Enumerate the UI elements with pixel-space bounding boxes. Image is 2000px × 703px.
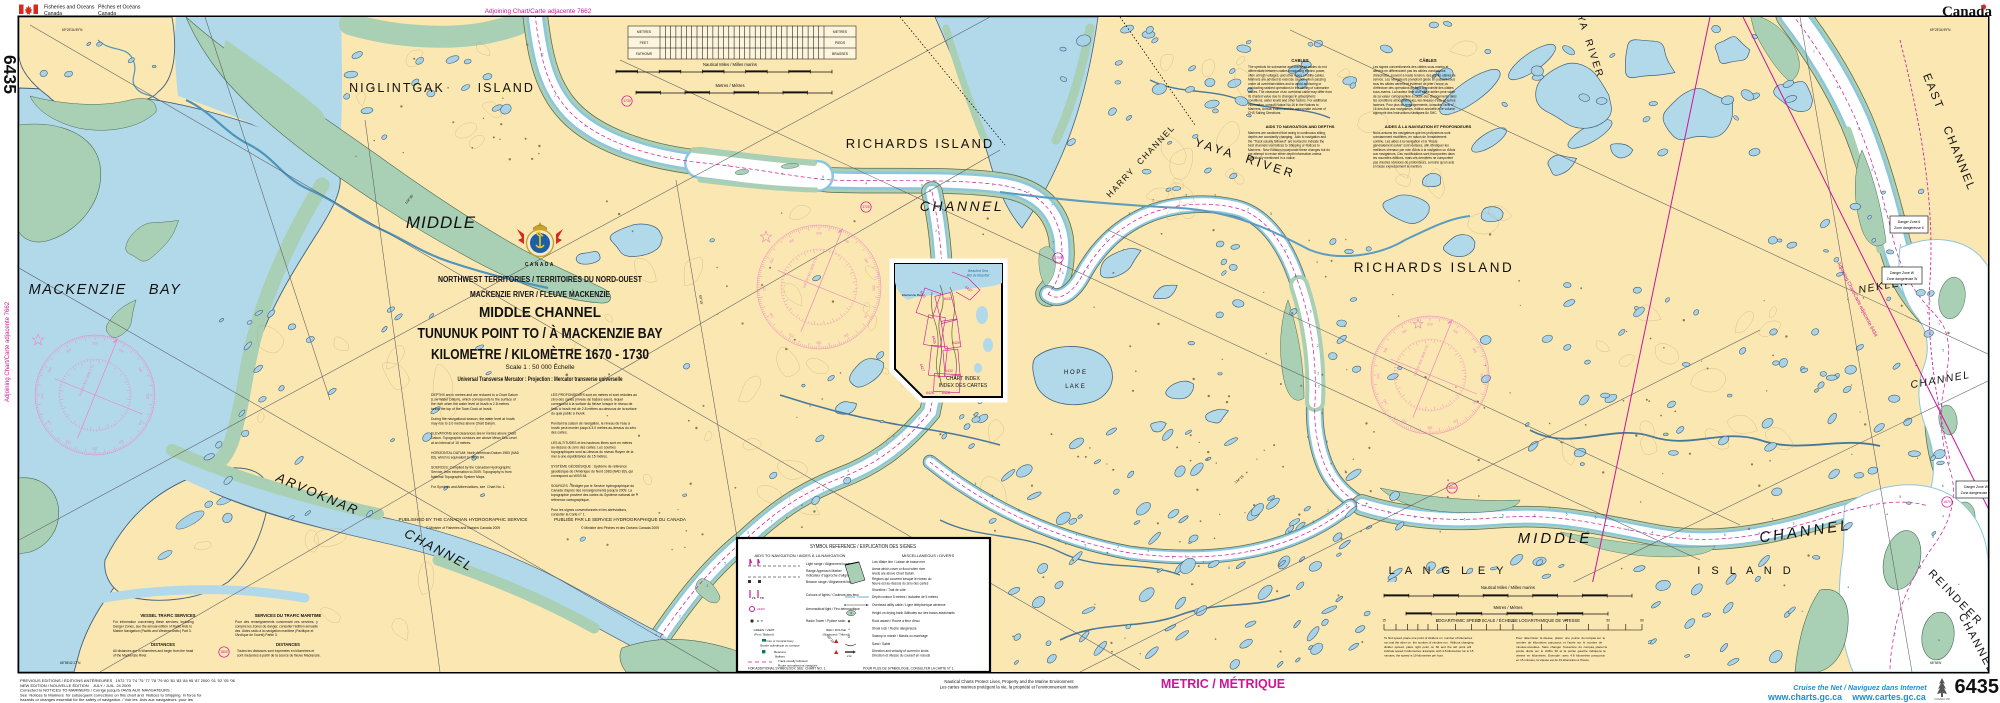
svg-text:3: 3 (747, 531, 749, 535)
svg-text:2: 2 (1858, 126, 1860, 130)
svg-text:6: 6 (1948, 461, 1950, 465)
svg-text:7: 7 (554, 94, 556, 98)
svg-text:180: 180 (92, 447, 98, 451)
svg-text:Metres / Mètres: Metres / Mètres (715, 83, 744, 88)
svg-text:Low Water line / Laisse de bas: Low Water line / Laisse de basse mer (872, 560, 926, 564)
svg-text:5: 5 (1058, 538, 1060, 542)
svg-text:METRES: METRES (833, 30, 848, 34)
svg-text:Direction and velocity of curr: Direction and velocity of current in kno… (872, 649, 929, 653)
svg-text:4: 4 (865, 182, 867, 186)
svg-text:69°25'34.99"N: 69°25'34.99"N (1930, 28, 1951, 32)
svg-text:2: 2 (679, 615, 681, 619)
svg-text:Pendant la saison de navigatio: Pendant la saison de navigation, le nive… (551, 422, 630, 426)
svg-text:des Aides radio à la navigati: des Aides radio à la navigation maritime… (235, 629, 314, 633)
svg-text:180: 180 (816, 341, 822, 345)
svg-text:topographiques sont au-dessus: topographiques sont au-dessus du niveau … (551, 450, 633, 454)
svg-text:METRIC / MÉTRIQUE: METRIC / MÉTRIQUE (1161, 676, 1285, 691)
svg-text:référence cartographique.: référence cartographique. (551, 498, 590, 502)
svg-text:Les cartes marines protègent l: Les cartes marines protègent la vie, la … (940, 685, 1079, 690)
svg-text:6: 6 (992, 494, 994, 498)
svg-text:3: 3 (620, 148, 622, 152)
svg-text:consulter la Carte n° 1.: consulter la Carte n° 1. (551, 513, 586, 517)
svg-text:6435: 6435 (1955, 676, 2000, 698)
svg-text:PIEDS: PIEDS (835, 41, 846, 45)
svg-text:NORTHWEST TERRITORIES / TERRIT: NORTHWEST TERRITORIES / TERRITOIRES DU N… (438, 275, 642, 284)
svg-text:Balises: Balises (775, 655, 785, 659)
svg-text:AERO: AERO (757, 607, 766, 611)
svg-text:6430: 6430 (944, 297, 952, 301)
svg-text:270: 270 (763, 285, 767, 291)
svg-text:LES PROFONDEURS sont en mètres: LES PROFONDEURS sont en mètres et sont r… (551, 393, 637, 397)
svg-text:Beacons: Beacons (774, 650, 786, 654)
svg-text:4: 4 (1883, 207, 1885, 211)
svg-text:6: 6 (1106, 238, 1108, 242)
svg-text:5: 5 (1346, 503, 1348, 507)
svg-text:compris les Zones de danger, c: compris les Zones de danger, consulter l… (235, 624, 318, 628)
svg-text:090: 090 (146, 394, 150, 400)
svg-text:Adjoining Chart/Carte adjacent: Adjoining Chart/Carte adjacente 7662 (5, 301, 11, 402)
svg-text:180: 180 (1427, 426, 1433, 430)
svg-text:www.charts.gc.ca: www.charts.gc.ca (1767, 692, 1842, 702)
svg-text:CABLES: CABLES (1291, 58, 1308, 63)
svg-text:Danger Zone 6: Danger Zone 6 (1898, 220, 1921, 224)
svg-text:5: 5 (1085, 543, 1087, 547)
svg-text:Areas which cover or flood whe: Areas which cover or flood when river (872, 567, 926, 571)
svg-text:BRASSES: BRASSES (832, 52, 849, 56)
svg-text:2: 2 (1318, 385, 1320, 389)
svg-text:3: 3 (542, 53, 544, 57)
svg-text:090: 090 (872, 286, 876, 292)
svg-text:7: 7 (918, 417, 920, 421)
svg-text:2: 2 (1247, 208, 1249, 212)
svg-text:2: 2 (584, 124, 586, 128)
svg-text:40: 40 (1565, 619, 1569, 623)
svg-text:run and the other on the numb: run and the other on the number of minut… (1384, 640, 1474, 644)
svg-text:Universal Transverse Mercator: Universal Transverse Mercator : Projecti… (458, 376, 623, 383)
svg-text:2: 2 (1152, 199, 1154, 203)
svg-text:3: 3 (1312, 520, 1314, 524)
svg-text:pointe droite sur le chiff: pointe droite sur le chiffre 60 et la po… (1516, 649, 1606, 653)
svg-text:4: 4 (1689, 534, 1691, 538)
svg-text:Swamp or marsh / Marais ou mar: Swamp or marsh / Marais ou marécage (872, 634, 928, 638)
svg-text:levels are above Chart Datum.: levels are above Chart Datum. (872, 572, 915, 576)
svg-text:7: 7 (1938, 323, 1940, 327)
svg-text:KILOMETRE / KILOMÈTRE 1670 - 1: KILOMETRE / KILOMÈTRE 1670 - 1730 (431, 346, 649, 363)
svg-text:METRES: METRES (637, 30, 652, 34)
svg-text:below the top of the Town Dock: below the top of the Town Dock at Inuvik… (431, 407, 493, 411)
svg-text:83), which is equivalent to WG: 83), which is equivalent to WGS 84. (431, 456, 485, 460)
svg-text:Zone dangereuse W: Zone dangereuse W (1887, 277, 1919, 281)
svg-text:60: 60 (1640, 619, 1644, 623)
svg-text:POUR PLUS DE SYMBOLOGIE, CONSU: POUR PLUS DE SYMBOLOGIE, CONSULTER LA CA… (863, 667, 954, 671)
svg-text:FATHOMS: FATHOMS (636, 52, 653, 56)
svg-text:National Topographic System Ma: National Topographic System Maps. (431, 475, 485, 479)
svg-text:Mackenzie Bay: Mackenzie Bay (902, 293, 923, 297)
svg-text:5: 5 (1326, 440, 1328, 444)
svg-text:PUBLIÉE PAR LE SERVICE HYDROGR: PUBLIÉE PAR LE SERVICE HYDROGRAPHIQUE DU… (554, 516, 687, 522)
svg-text:50: 50 (1606, 619, 1610, 623)
svg-text:Adjoining Chart/Carte adjacent: Adjoining Chart/Carte adjacente 7662 (485, 8, 592, 15)
svg-text:Radio Tower / Pylône radio: Radio Tower / Pylône radio (806, 619, 846, 623)
svg-text:the river when the water level: the river when the water level at Inuvik… (431, 402, 509, 406)
svg-text:Height on drying bank /Altitud: Height on drying bank /Altitudes sur des… (872, 611, 955, 615)
svg-text:I S L A N D: I S L A N D (1697, 565, 1794, 577)
svg-text:LOGARITHMIC SPEED SCALE / ÉCHE: LOGARITHMIC SPEED SCALE / ÉCHELLE LOGARI… (1436, 618, 1580, 623)
svg-text:mer à une équidistance de 15 m: mer à une équidistance de 15 mètres. (551, 455, 608, 459)
svg-text:Zone dangereuse W: Zone dangereuse W (1961, 491, 1993, 495)
svg-text:Metres / Mètres: Metres / Mètres (1493, 605, 1522, 610)
svg-text:5: 5 (1214, 194, 1216, 198)
svg-text:6: 6 (1920, 566, 1922, 570)
svg-text:© Ministre des Pêches et des O: © Ministre des Pêches et des Océans Cana… (581, 526, 659, 530)
svg-text:6: 6 (1942, 484, 1944, 488)
svg-text:www.cartes.gc.ca: www.cartes.gc.ca (1851, 692, 1926, 702)
svg-text:3: 3 (1087, 266, 1089, 270)
svg-text:Beacon range / Alignement bali: Beacon range / Alignement balisé (806, 580, 855, 584)
svg-text:Scale 1 : 50 000 Échelle: Scale 1 : 50 000 Échelle (506, 364, 576, 371)
svg-text:6429: 6429 (952, 341, 960, 345)
svg-text:du quai public à Inuvik.: du quai public à Inuvik. (551, 411, 586, 415)
svg-text:indicate speed in kilometres.: indicate speed in kilometres. Example: w… (1384, 649, 1474, 653)
svg-text:(Port / Bâbord): (Port / Bâbord) (754, 633, 774, 637)
svg-text:VESSEL TRAFIC SERVICES: VESSEL TRAFIC SERVICES (140, 613, 195, 618)
svg-text:2: 2 (1365, 503, 1367, 507)
svg-text:géodésique de l'Amérique du No: géodésique de l'Amérique du Nord 1983 (N… (551, 469, 633, 473)
svg-text:270: 270 (1377, 373, 1381, 379)
svg-text:SYMBOL REFERENCE / EXPLICATION: SYMBOL REFERENCE / EXPLICATION DES SIGNE… (810, 544, 917, 550)
svg-text:1800: 1800 (1448, 486, 1456, 490)
svg-text:4: 4 (847, 469, 849, 473)
svg-text:topographie provient des carte: topographie provient des cartes du Systè… (551, 493, 635, 497)
svg-text:Nautical Charts Protect Lives,: Nautical Charts Protect Lives, Property … (944, 679, 1074, 684)
svg-text:H O P E: H O P E (1064, 370, 1086, 376)
svg-text:4: 4 (1062, 271, 1064, 275)
svg-text:7: 7 (1285, 248, 1287, 252)
svg-text:SOURCES: Compiled by the Canad: SOURCES: Compiled by the Canadian Hydrog… (431, 466, 511, 470)
svg-text:3: 3 (1433, 519, 1435, 523)
svg-text:4: 4 (876, 452, 878, 456)
svg-text:HORIZONTAL DATUM: North Americ: HORIZONTAL DATUM: North American Datum 1… (431, 451, 520, 455)
svg-text:6: 6 (1310, 310, 1312, 314)
svg-text:Pêches et Océans: Pêches et Océans (98, 5, 141, 11)
svg-text:MACKENZIE BAY: MACKENZIE BAY (29, 282, 182, 298)
svg-text:4: 4 (781, 172, 783, 176)
svg-text:6: 6 (921, 183, 923, 187)
svg-text:For Symbols and Abbreviations,: For Symbols and Abbreviations, see Chart… (431, 485, 505, 489)
svg-text:en fasse expressément la menti: en fasse expressément la mention. (1373, 165, 1423, 169)
svg-text:2: 2 (935, 229, 937, 233)
svg-text:68°58'N: 68°58'N (1930, 661, 1942, 665)
svg-text:INDEX DES CARTES: INDEX DES CARTES (939, 383, 988, 389)
svg-text:Inuvik peut monter jusqu'à 3.0: Inuvik peut monter jusqu'à 3.0 mètres au… (551, 426, 636, 430)
svg-text:6426: 6426 (926, 391, 934, 395)
svg-text:To find speed, place one point: To find speed, place one point of divide… (1384, 636, 1473, 640)
svg-text:au-dessus du zéro des cartes.: au-dessus du zéro des cartes. Les courbe… (551, 445, 616, 449)
svg-text:of the Mackenzie River.: of the Mackenzie River. (113, 653, 147, 657)
svg-text:Nautical Miles / Milles marins: Nautical Miles / Milles marins (703, 62, 757, 67)
svg-text:5: 5 (1270, 212, 1272, 216)
svg-text:Sand / Sable: Sand / Sable (872, 642, 890, 646)
svg-text:fleuve est au-dessus du zéro d: fleuve est au-dessus du zéro des cartes (872, 582, 929, 586)
svg-text:FEET: FEET (640, 41, 649, 45)
svg-text:6: 6 (1932, 535, 1934, 539)
svg-text:4: 4 (1942, 515, 1944, 519)
svg-text:Pour les signes conventionnels: Pour les signes conventionnels et les ab… (551, 508, 627, 512)
svg-text:7: 7 (1908, 598, 1910, 602)
svg-text:PE: PE (752, 596, 756, 600)
svg-text:AIDS TO NAVIGATION / AIDES À L: AIDS TO NAVIGATION / AIDES À LA NAVIGATI… (755, 553, 846, 558)
svg-text:MIDDLE CHANNEL: MIDDLE CHANNEL (479, 304, 601, 321)
svg-text:des cartes.: des cartes. (551, 431, 568, 435)
svg-text:Beaufort Sea: Beaufort Sea (968, 269, 988, 273)
svg-text:4: 4 (655, 633, 657, 637)
svg-text:4: 4 (1147, 549, 1149, 553)
svg-text:Zone dangereuse 6: Zone dangereuse 6 (1894, 226, 1924, 230)
svg-text:2: 2 (1117, 545, 1119, 549)
svg-text:SERVICES DU TRAFIC MARITIME: SERVICES DU TRAFIC MARITIME (255, 613, 322, 618)
svg-text:1800: 1800 (220, 650, 228, 654)
svg-text:3: 3 (1037, 526, 1039, 530)
svg-text:divider spread, place right: divider spread, place right point on 60 … (1384, 645, 1472, 649)
svg-text:2: 2 (707, 584, 709, 588)
svg-text:(Low Water Datum), which corre: (Low Water Datum), which corresponds to … (431, 398, 516, 402)
svg-text:6: 6 (1322, 412, 1324, 416)
svg-text:CHART INDEX: CHART INDEX (946, 376, 980, 382)
svg-text:sont mesurées à partir de la s: sont mesurées à partir de la source du f… (237, 653, 321, 657)
svg-text:5: 5 (929, 189, 931, 193)
svg-text:3: 3 (1185, 193, 1187, 197)
svg-text:5: 5 (1502, 513, 1504, 517)
svg-text:4: 4 (975, 482, 977, 486)
svg-text:6: 6 (1941, 403, 1943, 407)
svg-text:Cruise the Net / Naviguez dans: Cruise the Net / Naviguez dans Internet (1793, 683, 1927, 692)
svg-text:4: 4 (1837, 85, 1839, 89)
svg-text:2: 2 (1272, 545, 1274, 549)
svg-text:Overhead utility cable / Ligne: Overhead utility cable / Ligne téléphoni… (872, 603, 946, 607)
svg-text:CHS Sailing Directions.: CHS Sailing Directions. (1248, 111, 1281, 115)
svg-text:specifically mentioned in a no: specifically mentioned in a notice. (1248, 156, 1296, 160)
svg-text:6: 6 (1331, 477, 1333, 481)
svg-text:Nautical Miles / Milles marins: Nautical Miles / Milles marins (1481, 585, 1535, 590)
svg-text:All distances are in kilometre: All distances are in kilometres and begi… (113, 649, 193, 653)
svg-text:7: 7 (670, 156, 672, 160)
svg-text:correspond au WGS 84.: correspond au WGS 84. (551, 474, 587, 478)
svg-text:Toutes les distances sont expr: Toutes les distances sont exprimées en k… (237, 649, 314, 653)
svg-text:en 15 minutes, la vitesse est: en 15 minutes, la vitesse est de 19 kilo… (1516, 658, 1590, 662)
svg-text:RICHARDS ISLAND: RICHARDS ISLAND (846, 136, 994, 151)
svg-text:AIDES À LA NAVIGATION ET PROFO: AIDES À LA NAVIGATION ET PROFONDEURS (1385, 124, 1472, 129)
svg-text:Danger Zone W: Danger Zone W (1890, 271, 1915, 275)
svg-text:2: 2 (1317, 371, 1319, 375)
svg-text:Datum. Topographic contours ar: Datum. Topographic contours are above Me… (431, 436, 517, 440)
svg-text:000: 000 (92, 342, 98, 346)
svg-text:© Minister of Fisheries and Oc: © Minister of Fisheries and Oceans Canad… (426, 526, 500, 530)
svg-text:minutes, the speed is 19 kilom: minutes, the speed is 19 kilometres per … (1384, 654, 1444, 658)
svg-text:DISTANCES: DISTANCES (151, 642, 175, 647)
svg-text:4: 4 (801, 504, 803, 508)
svg-text:TUNUNUK POINT TO / À MACKENZIE: TUNUNUK POINT TO / À MACKENZIE BAY (418, 325, 663, 342)
svg-text:Bouée cylindrique ou conique: Bouée cylindrique ou conique (760, 644, 800, 648)
svg-text:Shoal rock / Roche dangereuse: Shoal rock / Roche dangereuse (872, 627, 917, 631)
svg-text:correspond à la surface du fle: correspond à la surface du fleuve lorsqu… (551, 402, 633, 406)
svg-text:6: 6 (822, 175, 824, 179)
svg-text:7: 7 (1813, 50, 1815, 54)
svg-text:Direction et vitesse du couran: Direction et vitesse du courant en nœuds (872, 654, 931, 658)
svg-text:For information concerning: For information concerning these service… (113, 620, 194, 624)
svg-text:LES ALTITUDES et les hauteurs: LES ALTITUDES et les hauteurs libres son… (551, 441, 632, 445)
svg-text:at an interval of 15 metres.: at an interval of 15 metres. (431, 441, 471, 445)
svg-text:RED / ROUGE: RED / ROUGE (826, 628, 846, 632)
svg-text:l'Arctique de l'ouest) Partie: l'Arctique de l'ouest) Partie 3. (235, 633, 278, 637)
svg-text:7: 7 (992, 183, 994, 187)
svg-text:2: 2 (1172, 555, 1174, 559)
svg-text:5: 5 (1288, 530, 1290, 534)
svg-text:approprié des Instructions nau: approprié des Instructions nautiques du … (1373, 111, 1437, 115)
svg-text:Marine Navigation (Pacific and: Marine Navigation (Pacific and Western A… (113, 629, 192, 633)
svg-text:1790: 1790 (1054, 256, 1062, 260)
svg-text:Colours of lights / Couleurs d: Colours of lights / Couleurs des feux (806, 593, 859, 597)
svg-text:5: 5 (1870, 505, 1872, 509)
svg-text:7: 7 (1028, 191, 1030, 195)
svg-text:Danger Zones, see the annual e: Danger Zones, see the annual edition of … (113, 624, 192, 628)
svg-text:MIDDLE: MIDDLE (406, 213, 476, 232)
svg-text:Canada d'après des renseigneme: Canada d'après des renseignements jusqu'… (551, 489, 632, 493)
svg-text:2: 2 (1327, 509, 1329, 513)
svg-text:may rise to 3.0 metres above C: may rise to 3.0 metres above Chart Datum… (431, 422, 496, 426)
svg-text:Mer de Beaufort: Mer de Beaufort (967, 274, 990, 278)
svg-text:Shoreline / Trait de côte: Shoreline / Trait de côte (872, 588, 906, 592)
svg-text:1720: 1720 (862, 205, 870, 209)
svg-text:L A N G L E Y: L A N G L E Y (1389, 565, 1508, 577)
svg-text:1730: 1730 (623, 99, 631, 103)
svg-text:3: 3 (727, 163, 729, 167)
svg-text:000: 000 (1427, 323, 1433, 327)
svg-text:2 kn: 2 kn (847, 654, 852, 658)
svg-text:2: 2 (1317, 344, 1319, 348)
svg-text:2: 2 (1388, 511, 1390, 515)
svg-text:vitesse en kilomètres. Exem: vitesse en kilomètres. Exemple: avec 4.8… (1516, 654, 1605, 658)
svg-text:AIDS TO NAVIGATION AND DEPTHS: AIDS TO NAVIGATION AND DEPTHS (1266, 124, 1335, 129)
svg-text:Rock awash / Roche à fleur d'e: Rock awash / Roche à fleur d'eau (872, 619, 920, 623)
svg-text:Service, from information to 2: Service, from information to 2009. Topog… (431, 470, 512, 474)
svg-text:20: 20 (1436, 619, 1440, 623)
svg-text:MIDDLE: MIDDLE (1518, 530, 1593, 547)
svg-text:3: 3 (1128, 212, 1130, 216)
svg-text:minutes écoulées. Sans chang: minutes écoulées. Sans changer l'ouvertu… (1516, 645, 1607, 649)
svg-text:7: 7 (1052, 241, 1054, 245)
svg-text:CANADA: CANADA (525, 262, 555, 268)
svg-text:4: 4 (1652, 530, 1654, 534)
svg-text:+: + (848, 628, 850, 632)
svg-text:Fisheries and Oceans: Fisheries and Oceans (44, 5, 95, 11)
svg-text:Pour des renseignements con: Pour des renseignements concernant ces s… (235, 620, 318, 624)
svg-text:DEPTHS are in metres and are r: DEPTHS are in metres and are reduced to … (431, 393, 518, 397)
svg-text:Can or Conical buoy: Can or Conical buoy (766, 639, 794, 643)
svg-text:MACKENZIE RIVER / FLEUVE MACKE: MACKENZIE RIVER / FLEUVE MACKENZIE (470, 290, 611, 299)
svg-text:2: 2 (893, 434, 895, 438)
svg-text:GREEN / VERT: GREEN / VERT (753, 628, 774, 632)
svg-text:Depth contour 5 metres / Isoba: Depth contour 5 metres / Isobathe de 5 m… (872, 595, 938, 599)
svg-text:FOR ADDITIONAL SYMBOLOGY, SEE: FOR ADDITIONAL SYMBOLOGY, SEE CHART NO. … (748, 667, 826, 671)
svg-text:7: 7 (931, 456, 933, 460)
svg-text:6: 6 (1228, 566, 1230, 570)
svg-text:Range Approach Marker: Range Approach Marker (806, 569, 843, 573)
svg-text:RICHARDS ISLAND: RICHARDS ISLAND (1354, 260, 1515, 275)
svg-text:5: 5 (1942, 349, 1944, 353)
svg-text:5: 5 (1628, 528, 1630, 532)
svg-text:ELEVATIONS and clearances are: ELEVATIONS and clearances are in metres … (431, 432, 516, 436)
svg-text:7: 7 (822, 488, 824, 492)
svg-text:3: 3 (951, 471, 953, 475)
svg-text:4: 4 (1295, 275, 1297, 279)
svg-text:090: 090 (1480, 374, 1484, 380)
svg-text:6428: 6428 (942, 391, 950, 395)
svg-text:5: 5 (724, 562, 726, 566)
svg-text:PUBLISHED BY THE CANADIAN HYDR: PUBLISHED BY THE CANADIAN HYDROGRAPHIC S… (399, 517, 528, 522)
svg-text:CÂBLES: CÂBLES (1419, 58, 1436, 63)
svg-text:Pour déterminer la vitesse,: Pour déterminer la vitesse, placer une p… (1516, 636, 1605, 640)
svg-text:6435: 6435 (0, 55, 20, 94)
svg-text:7: 7 (771, 519, 773, 523)
svg-text:CHANNEL: CHANNEL (920, 198, 1004, 214)
svg-text:CANADA 150: CANADA 150 (1934, 697, 1950, 701)
svg-text:30: 30 (1511, 619, 1515, 623)
svg-text:Régions qui couvrent lorsque l: Régions qui couvrent lorsque le niveau d… (872, 577, 932, 581)
svg-text:2: 2 (1894, 633, 1896, 637)
svg-text:PB: PB (760, 596, 764, 600)
svg-text:7: 7 (1250, 550, 1252, 554)
svg-text:6: 6 (1464, 518, 1466, 522)
svg-text:7: 7 (1202, 561, 1204, 565)
svg-text:DISTANCES: DISTANCES (276, 642, 300, 647)
svg-text:25: 25 (1477, 619, 1481, 623)
svg-text:4: 4 (1018, 509, 1020, 513)
svg-text:7: 7 (1051, 203, 1053, 207)
svg-text:During the navigational season: During the navigational season, the wate… (431, 417, 515, 421)
svg-text:1670: 1670 (1943, 500, 1951, 504)
svg-text:Danger Zone W: Danger Zone W (1964, 485, 1989, 489)
svg-text:3: 3 (1534, 513, 1536, 517)
svg-text:000: 000 (816, 232, 822, 236)
svg-text:5: 5 (1724, 533, 1726, 537)
svg-text:l'eau à Inuvik est de 2.8 mètr: l'eau à Inuvik est de 2.8 mètres au-dess… (551, 407, 637, 411)
svg-text:nombre de kilomètres parcou: nombre de kilomètres parcourus et l'autr… (1516, 640, 1602, 644)
svg-text:NIGLINTGAK ISLAND: NIGLINTGAK ISLAND (349, 81, 535, 95)
svg-text:zéro des cartes (niveau de bas: zéro des cartes (niveau de basses eaux),… (551, 398, 623, 402)
svg-text:SYSTÈME GÉODÉSIQUE : Système d: SYSTÈME GÉODÉSIQUE : Système de référenc… (551, 464, 627, 469)
svg-text:6432: 6432 (945, 369, 953, 373)
svg-text:6: 6 (1595, 515, 1597, 519)
svg-text:270: 270 (41, 393, 45, 399)
svg-text:7: 7 (1832, 511, 1834, 515)
svg-text:L A K E: L A K E (1065, 384, 1084, 390)
svg-text:4: 4 (1871, 168, 1873, 172)
svg-text:5: 5 (1566, 513, 1568, 517)
svg-text:15: 15 (1382, 619, 1386, 623)
svg-text:SOURCES : Rédigée par le Servi: SOURCES : Rédigée par le Service hydrogr… (551, 484, 634, 488)
svg-text:5: 5 (1899, 495, 1901, 499)
svg-text:3: 3 (1900, 243, 1902, 247)
svg-text:R. Tr: R. Tr (757, 619, 763, 623)
svg-text:MISCELLANEOUS / DIVERS: MISCELLANEOUS / DIVERS (902, 553, 955, 558)
svg-text:Track usually followed: Track usually followed (778, 659, 808, 663)
svg-text:6: 6 (1414, 515, 1416, 519)
svg-text:68°58'42.17"N: 68°58'42.17"N (60, 661, 81, 665)
svg-text:69°25'34.99"N: 69°25'34.99"N (62, 28, 83, 32)
